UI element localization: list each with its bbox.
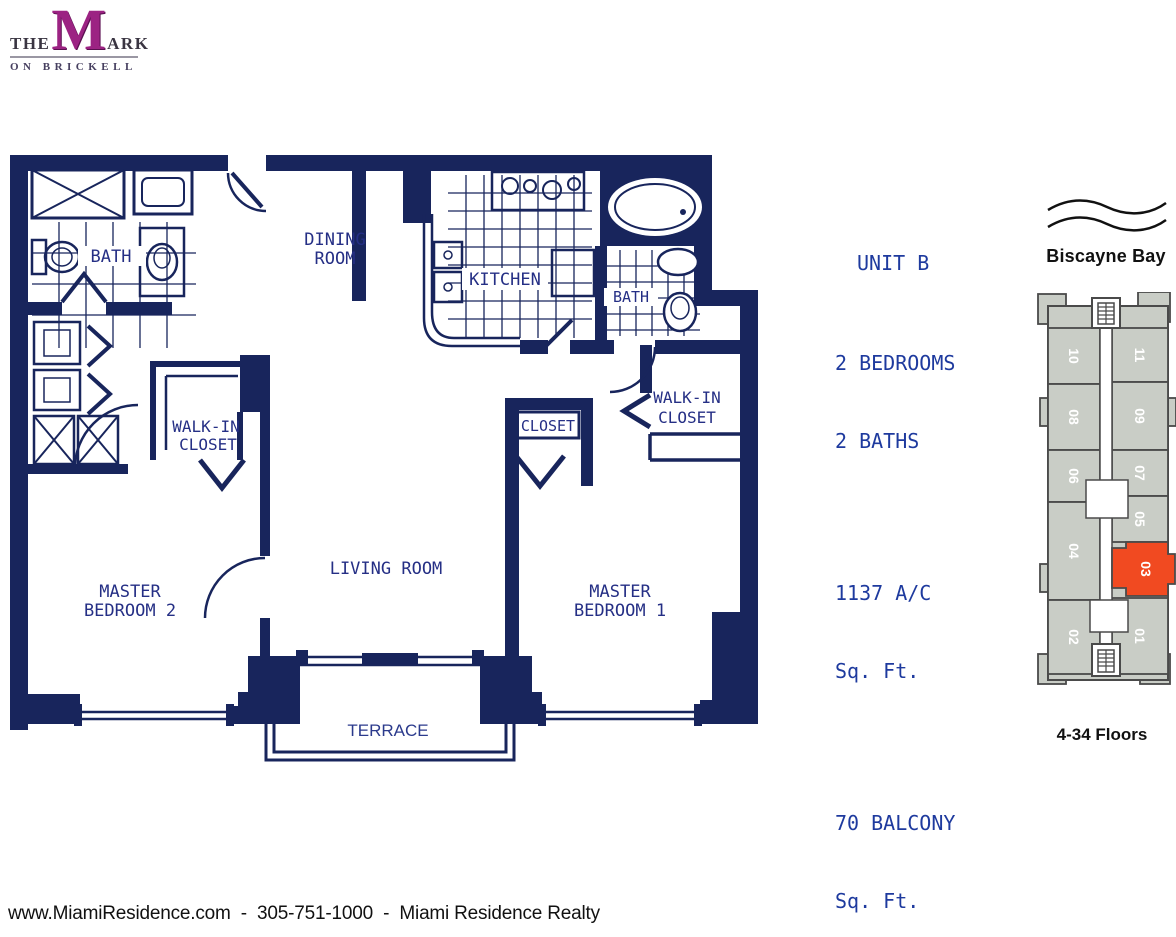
keyplan-unit-10: 10	[1048, 328, 1100, 384]
bedroom2-door-arc	[205, 558, 265, 618]
keyplan-unit-01-label: 01	[1132, 628, 1148, 644]
keyplan-unit-09-label: 09	[1132, 408, 1148, 424]
keyplan-unit-03: 03	[1112, 542, 1175, 596]
room-label-dining-1: DINING	[304, 230, 365, 250]
room-label-kitchen: KITCHEN	[469, 270, 541, 290]
keyplan-unit-11-label: 11	[1132, 348, 1148, 363]
room-label-living: LIVING ROOM	[330, 559, 443, 579]
room-label-mb2-2: BEDROOM 2	[84, 601, 176, 621]
floor-plan: BATH DINING ROOM KITCHEN BATH WALK-IN CL…	[0, 150, 770, 780]
room-label-mb1-2: BEDROOM 1	[574, 601, 666, 621]
brochure-page: THE M ARK ON BRICKELL	[0, 0, 1176, 937]
room-label-wic-left-1: WALK-IN	[172, 417, 239, 436]
keyplan-unit-04-label: 04	[1066, 543, 1082, 559]
keyplan-unit-03-label: 03	[1138, 561, 1154, 577]
room-label-wic-right-1: WALK-IN	[653, 388, 720, 407]
floorplan-walls	[10, 155, 758, 730]
room-label-mb1-1: MASTER	[589, 582, 651, 602]
unit-info: UNIT B 2 BEDROOMS 2 BATHS 1137 A/C Sq. F…	[835, 198, 1045, 937]
unit-bedrooms: 2 BEDROOMS	[835, 350, 1045, 376]
keyplan-unit-09: 09	[1112, 382, 1168, 450]
keyplan-unit-10-label: 10	[1066, 348, 1082, 364]
unit-balcony-unit: Sq. Ft.	[835, 888, 1045, 914]
room-label-terrace: TERRACE	[347, 721, 428, 740]
waves-icon	[1044, 196, 1170, 244]
room-label-wic-right-2: CLOSET	[658, 408, 716, 427]
room-label-bath-right: BATH	[613, 288, 649, 306]
floors-label: 4-34 Floors	[1028, 725, 1176, 745]
bay-label: Biscayne Bay	[1040, 246, 1172, 267]
entry-door	[228, 173, 266, 211]
terrace-outline	[266, 657, 514, 760]
unit-title: UNIT B	[857, 250, 1045, 276]
keyplan-unit-11: 11	[1112, 328, 1168, 382]
logo-m: M	[51, 6, 106, 54]
unit-baths: 2 BATHS	[835, 428, 1045, 454]
unit-area-unit: Sq. Ft.	[835, 658, 1045, 684]
unit-balcony-value: 70 BALCONY	[835, 810, 1045, 836]
room-label-dining-2: ROOM	[315, 249, 356, 269]
keyplan-unit-08-label: 08	[1066, 409, 1082, 425]
logo-tagline: ON BRICKELL	[10, 61, 160, 73]
bath-right-fixtures	[604, 178, 702, 392]
footer-contact: www.MiamiResidence.com - 305-751-1000 - …	[8, 903, 600, 925]
keyplan-unit-02-label: 02	[1066, 629, 1082, 645]
key-plan: 10 11 08 09 06 07	[1028, 292, 1176, 692]
room-label-closet: CLOSET	[521, 417, 575, 435]
room-label-wic-left-2: CLOSET	[179, 435, 237, 454]
logo-the: THE	[10, 34, 50, 54]
logo-ark: ARK	[107, 34, 149, 54]
logo: THE M ARK ON BRICKELL	[10, 6, 160, 73]
unit-area-value: 1137 A/C	[835, 580, 1045, 606]
kitchen-fixtures	[424, 172, 594, 352]
room-label-mb2-1: MASTER	[99, 582, 161, 602]
keyplan-unit-07-label: 07	[1132, 465, 1148, 481]
keyplan-unit-05-label: 05	[1132, 511, 1148, 527]
keyplan-unit-06-label: 06	[1066, 468, 1082, 484]
logo-wordmark: THE M ARK	[10, 6, 160, 54]
keyplan-unit-08: 08	[1048, 384, 1100, 450]
room-label-bath-left: BATH	[91, 247, 132, 267]
